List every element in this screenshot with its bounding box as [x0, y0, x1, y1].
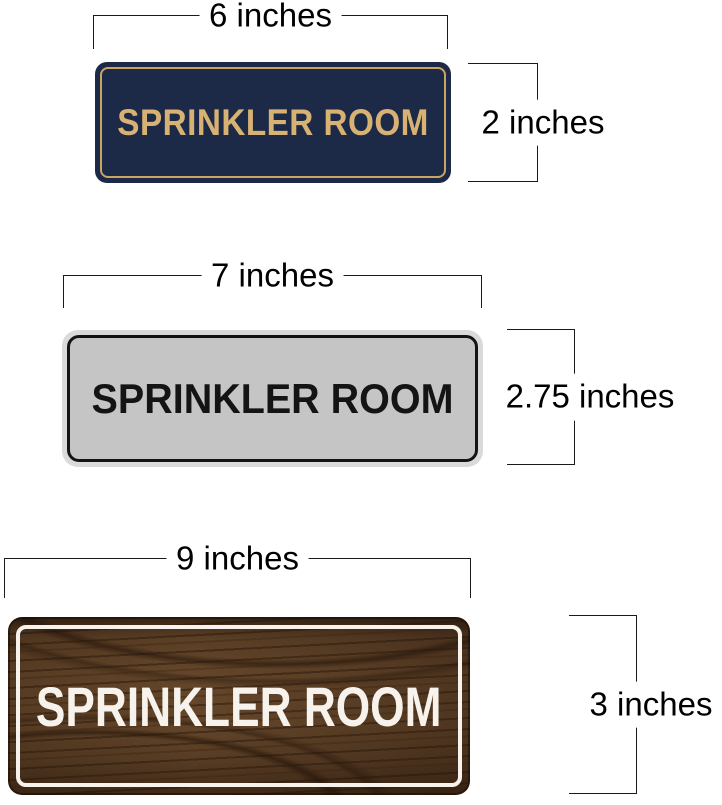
width-dimension-bracket-silver: 7 inches: [63, 275, 482, 308]
height-dimension-bracket-navy: 2 inches: [468, 63, 538, 182]
height-dimension-label-silver: 2.75 inches: [498, 374, 683, 421]
sign-silver: SPRINKLER ROOM: [62, 330, 483, 467]
width-dimension-label-silver: 7 inches: [201, 259, 344, 294]
width-dimension-label-navy: 6 inches: [199, 0, 342, 33]
sign-silver-text: SPRINKLER ROOM: [92, 375, 454, 423]
size-comparison-diagram: 6 inches SPRINKLER ROOM 2 inches 7 inche…: [0, 0, 722, 805]
height-dimension-label-walnut: 3 inches: [582, 681, 721, 728]
height-dimension-label-navy: 2 inches: [474, 99, 613, 146]
sign-navy-gold: SPRINKLER ROOM: [95, 62, 451, 183]
sign-silver-inner-plate: SPRINKLER ROOM: [67, 335, 478, 462]
height-dimension-bracket-walnut: 3 inches: [569, 615, 637, 794]
width-dimension-bracket-navy: 6 inches: [93, 15, 448, 49]
height-dimension-bracket-silver: 2.75 inches: [507, 329, 575, 465]
sign-navy-text: SPRINKLER ROOM: [117, 102, 429, 144]
width-dimension-label-walnut: 9 inches: [166, 542, 309, 577]
sign-walnut-wood: SPRINKLER ROOM: [8, 617, 470, 795]
width-dimension-bracket-walnut: 9 inches: [4, 558, 471, 598]
sign-walnut-text: SPRINKLER ROOM: [36, 674, 442, 739]
